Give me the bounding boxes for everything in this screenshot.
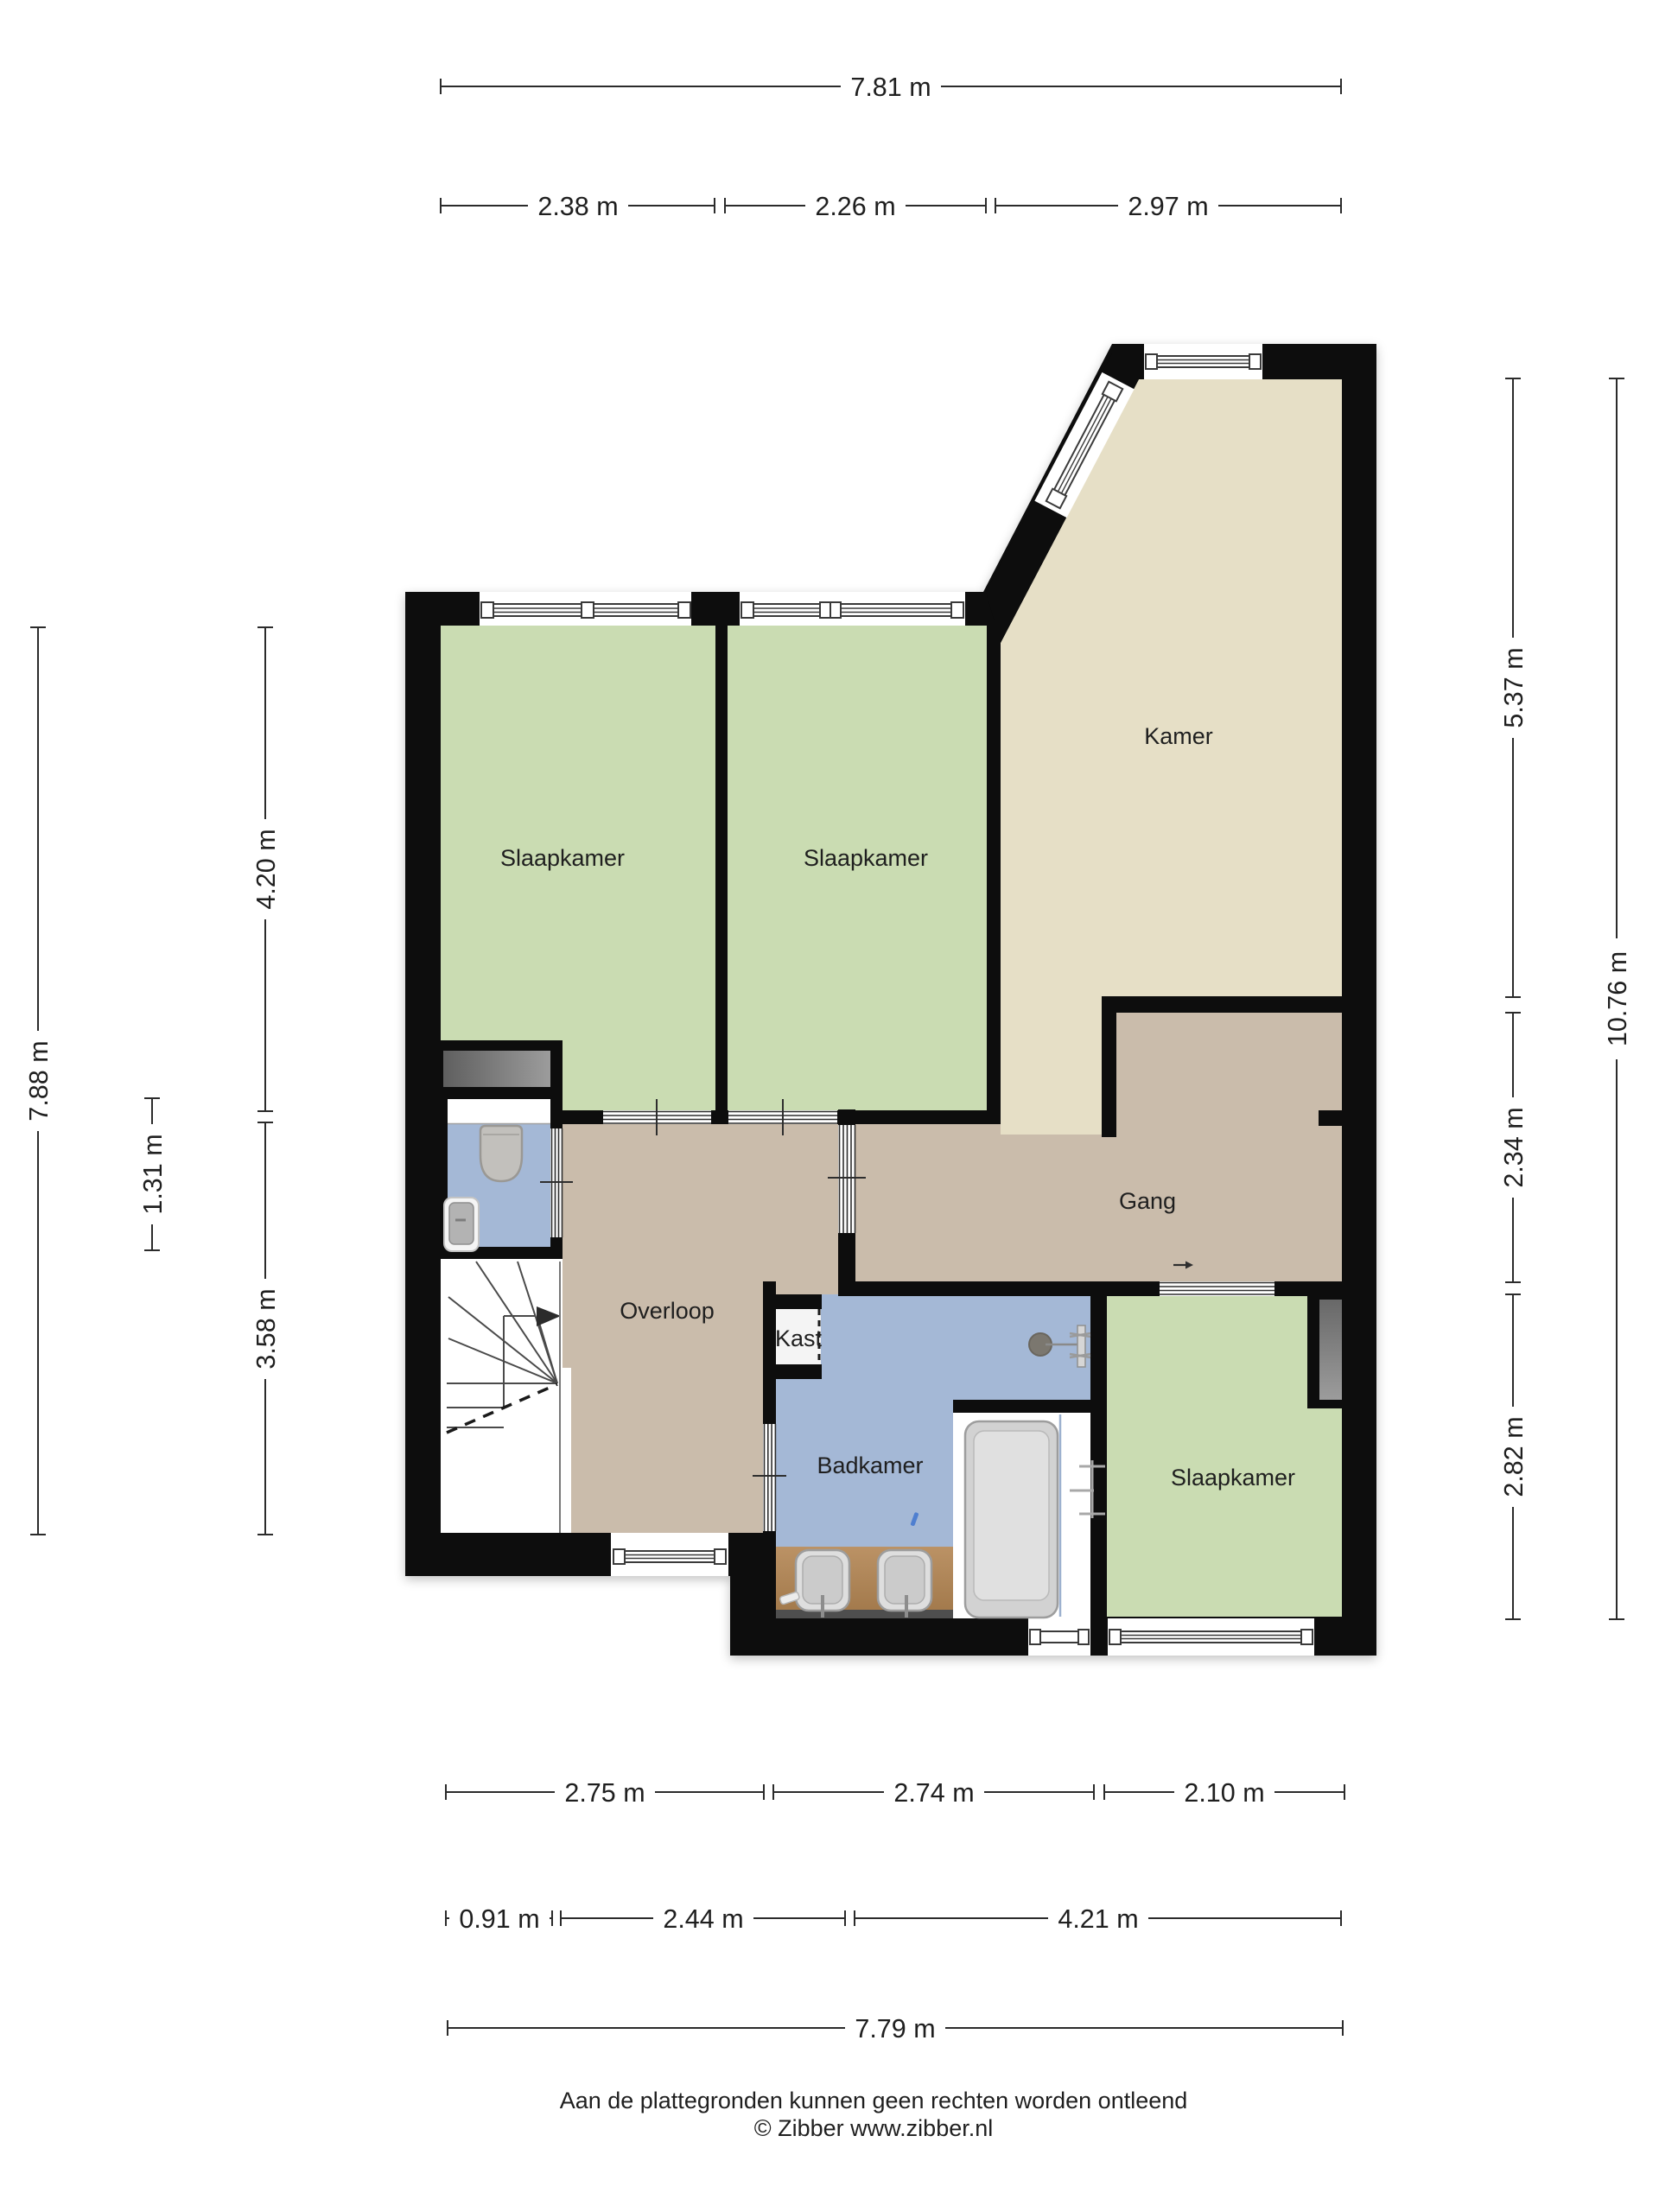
svg-text:Kast: Kast (775, 1325, 823, 1351)
svg-text:2.44 m: 2.44 m (663, 1904, 743, 1934)
svg-text:2.75 m: 2.75 m (564, 1778, 645, 1808)
svg-text:1.31 m: 1.31 m (138, 1134, 168, 1214)
svg-text:2.82 m: 2.82 m (1499, 1416, 1529, 1497)
svg-text:7.81 m: 7.81 m (850, 73, 931, 102)
svg-text:2.74 m: 2.74 m (893, 1778, 974, 1808)
svg-text:Aan de plattegronden kunnen ge: Aan de plattegronden kunnen geen rechten… (560, 2088, 1188, 2113)
svg-text:3.58 m: 3.58 m (251, 1288, 281, 1369)
svg-text:2.34 m: 2.34 m (1499, 1107, 1529, 1187)
svg-text:7.88 m: 7.88 m (24, 1040, 54, 1121)
svg-text:7.79 m: 7.79 m (855, 2014, 935, 2044)
svg-text:Slaapkamer: Slaapkamer (804, 845, 928, 871)
svg-text:2.10 m: 2.10 m (1184, 1778, 1264, 1808)
svg-text:4.21 m: 4.21 m (1058, 1904, 1138, 1934)
svg-text:Slaapkamer: Slaapkamer (500, 845, 625, 871)
svg-text:© Zibber www.zibber.nl: © Zibber www.zibber.nl (754, 2115, 994, 2141)
svg-text:2.38 m: 2.38 m (537, 192, 618, 221)
svg-text:Slaapkamer: Slaapkamer (1171, 1465, 1295, 1491)
svg-text:Kamer: Kamer (1144, 723, 1213, 749)
svg-text:5.37 m: 5.37 m (1499, 647, 1529, 728)
svg-text:2.97 m: 2.97 m (1128, 192, 1208, 221)
svg-text:2.26 m: 2.26 m (815, 192, 895, 221)
svg-text:10.76 m: 10.76 m (1603, 951, 1632, 1046)
svg-text:0.91 m: 0.91 m (459, 1904, 539, 1934)
svg-text:Badkamer: Badkamer (817, 1452, 923, 1478)
svg-text:4.20 m: 4.20 m (251, 829, 281, 909)
svg-text:Gang: Gang (1119, 1188, 1176, 1214)
svg-text:Overloop: Overloop (620, 1298, 715, 1324)
